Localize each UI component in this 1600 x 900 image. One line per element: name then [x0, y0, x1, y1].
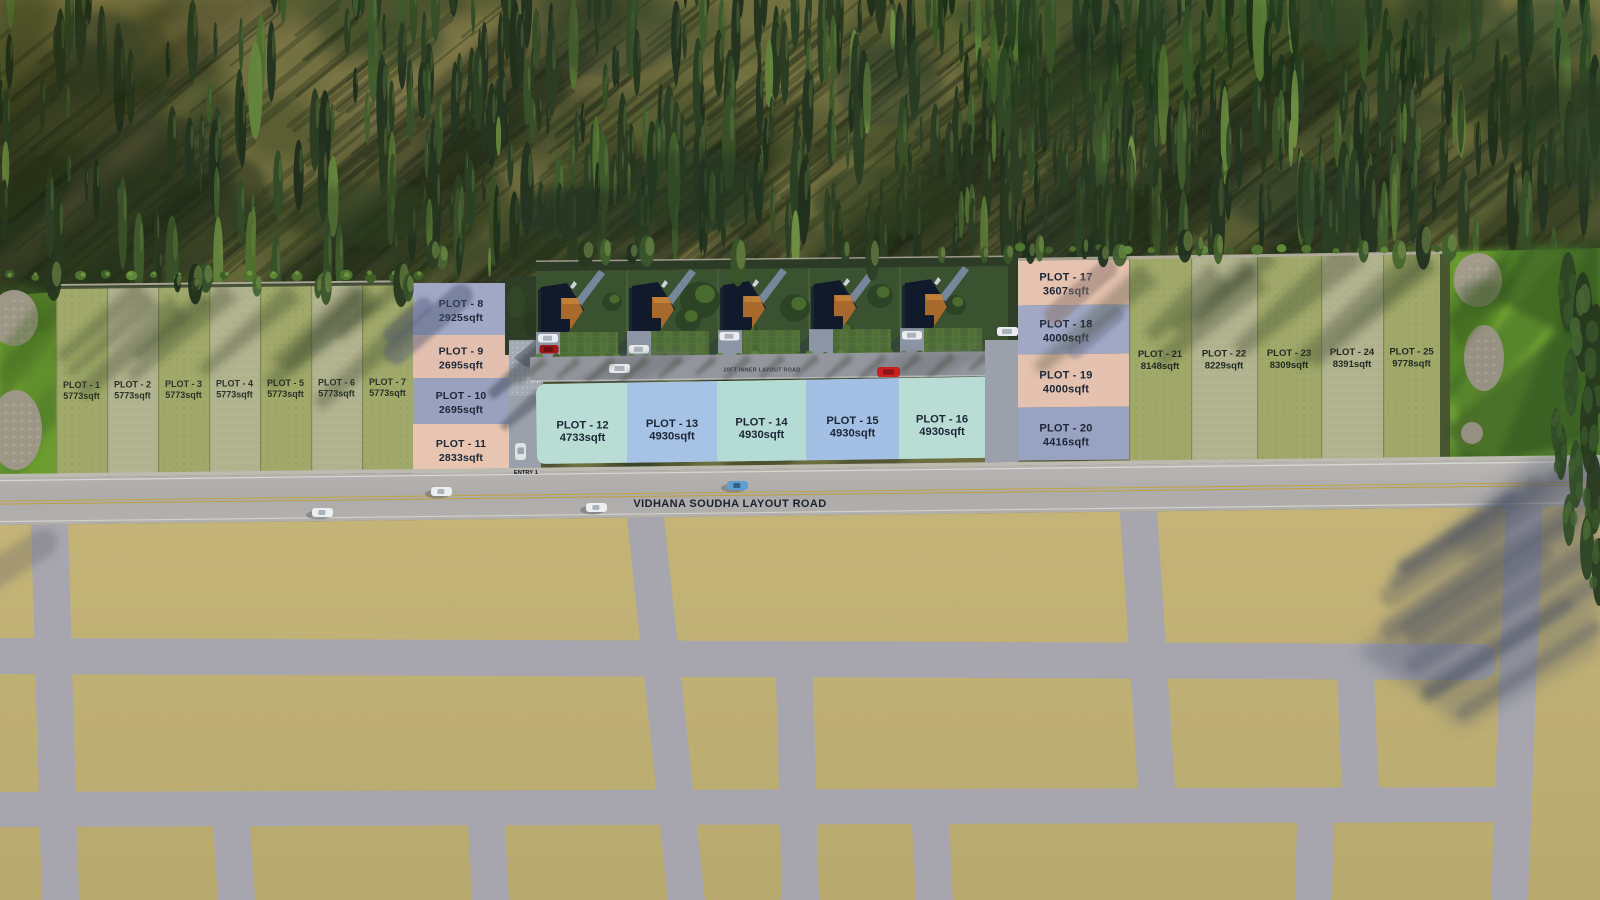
- svg-text:PLOT - 19: PLOT - 19: [1039, 370, 1092, 382]
- svg-text:4930sqft: 4930sqft: [830, 428, 876, 440]
- svg-text:PLOT - 20: PLOT - 20: [1039, 423, 1092, 435]
- svg-text:4930sqft: 4930sqft: [649, 430, 695, 442]
- svg-text:4930sqft: 4930sqft: [919, 426, 965, 438]
- svg-text:9778sqft: 9778sqft: [1392, 359, 1431, 370]
- svg-text:PLOT - 13: PLOT - 13: [646, 418, 698, 430]
- svg-text:4416sqft: 4416sqft: [1043, 437, 1089, 449]
- svg-text:5773sqft: 5773sqft: [114, 391, 151, 401]
- svg-text:5773sqft: 5773sqft: [165, 390, 202, 400]
- svg-text:PLOT - 2: PLOT - 2: [114, 380, 151, 390]
- svg-text:ENTRY 1: ENTRY 1: [514, 470, 538, 476]
- svg-text:PLOT - 15: PLOT - 15: [826, 415, 878, 427]
- svg-text:4000sqft: 4000sqft: [1043, 384, 1089, 396]
- svg-text:4733sqft: 4733sqft: [560, 432, 606, 444]
- svg-text:2695sqft: 2695sqft: [439, 360, 484, 372]
- svg-text:8148sqft: 8148sqft: [1141, 361, 1180, 372]
- svg-text:PLOT - 7: PLOT - 7: [369, 377, 406, 387]
- svg-text:5773sqft: 5773sqft: [369, 388, 406, 398]
- svg-text:5773sqft: 5773sqft: [267, 389, 304, 399]
- svg-text:PLOT - 14: PLOT - 14: [735, 416, 788, 428]
- svg-text:2695sqft: 2695sqft: [439, 404, 484, 416]
- svg-text:PLOT - 4: PLOT - 4: [216, 379, 253, 389]
- svg-text:PLOT - 10: PLOT - 10: [436, 390, 487, 402]
- svg-text:PLOT - 11: PLOT - 11: [436, 438, 486, 450]
- svg-text:PLOT - 16: PLOT - 16: [916, 414, 968, 426]
- svg-text:5773sqft: 5773sqft: [216, 390, 253, 400]
- svg-text:8391sqft: 8391sqft: [1333, 359, 1372, 370]
- svg-text:VIDHANA SOUDHA LAYOUT ROAD: VIDHANA SOUDHA LAYOUT ROAD: [633, 498, 826, 510]
- svg-text:PLOT - 12: PLOT - 12: [556, 419, 608, 431]
- svg-text:8229sqft: 8229sqft: [1205, 361, 1244, 372]
- svg-text:4930sqft: 4930sqft: [739, 429, 785, 441]
- svg-text:PLOT - 25: PLOT - 25: [1389, 347, 1434, 358]
- svg-text:2833sqft: 2833sqft: [439, 452, 484, 464]
- svg-text:PLOT - 3: PLOT - 3: [165, 379, 202, 389]
- svg-text:PLOT - 9: PLOT - 9: [439, 346, 484, 358]
